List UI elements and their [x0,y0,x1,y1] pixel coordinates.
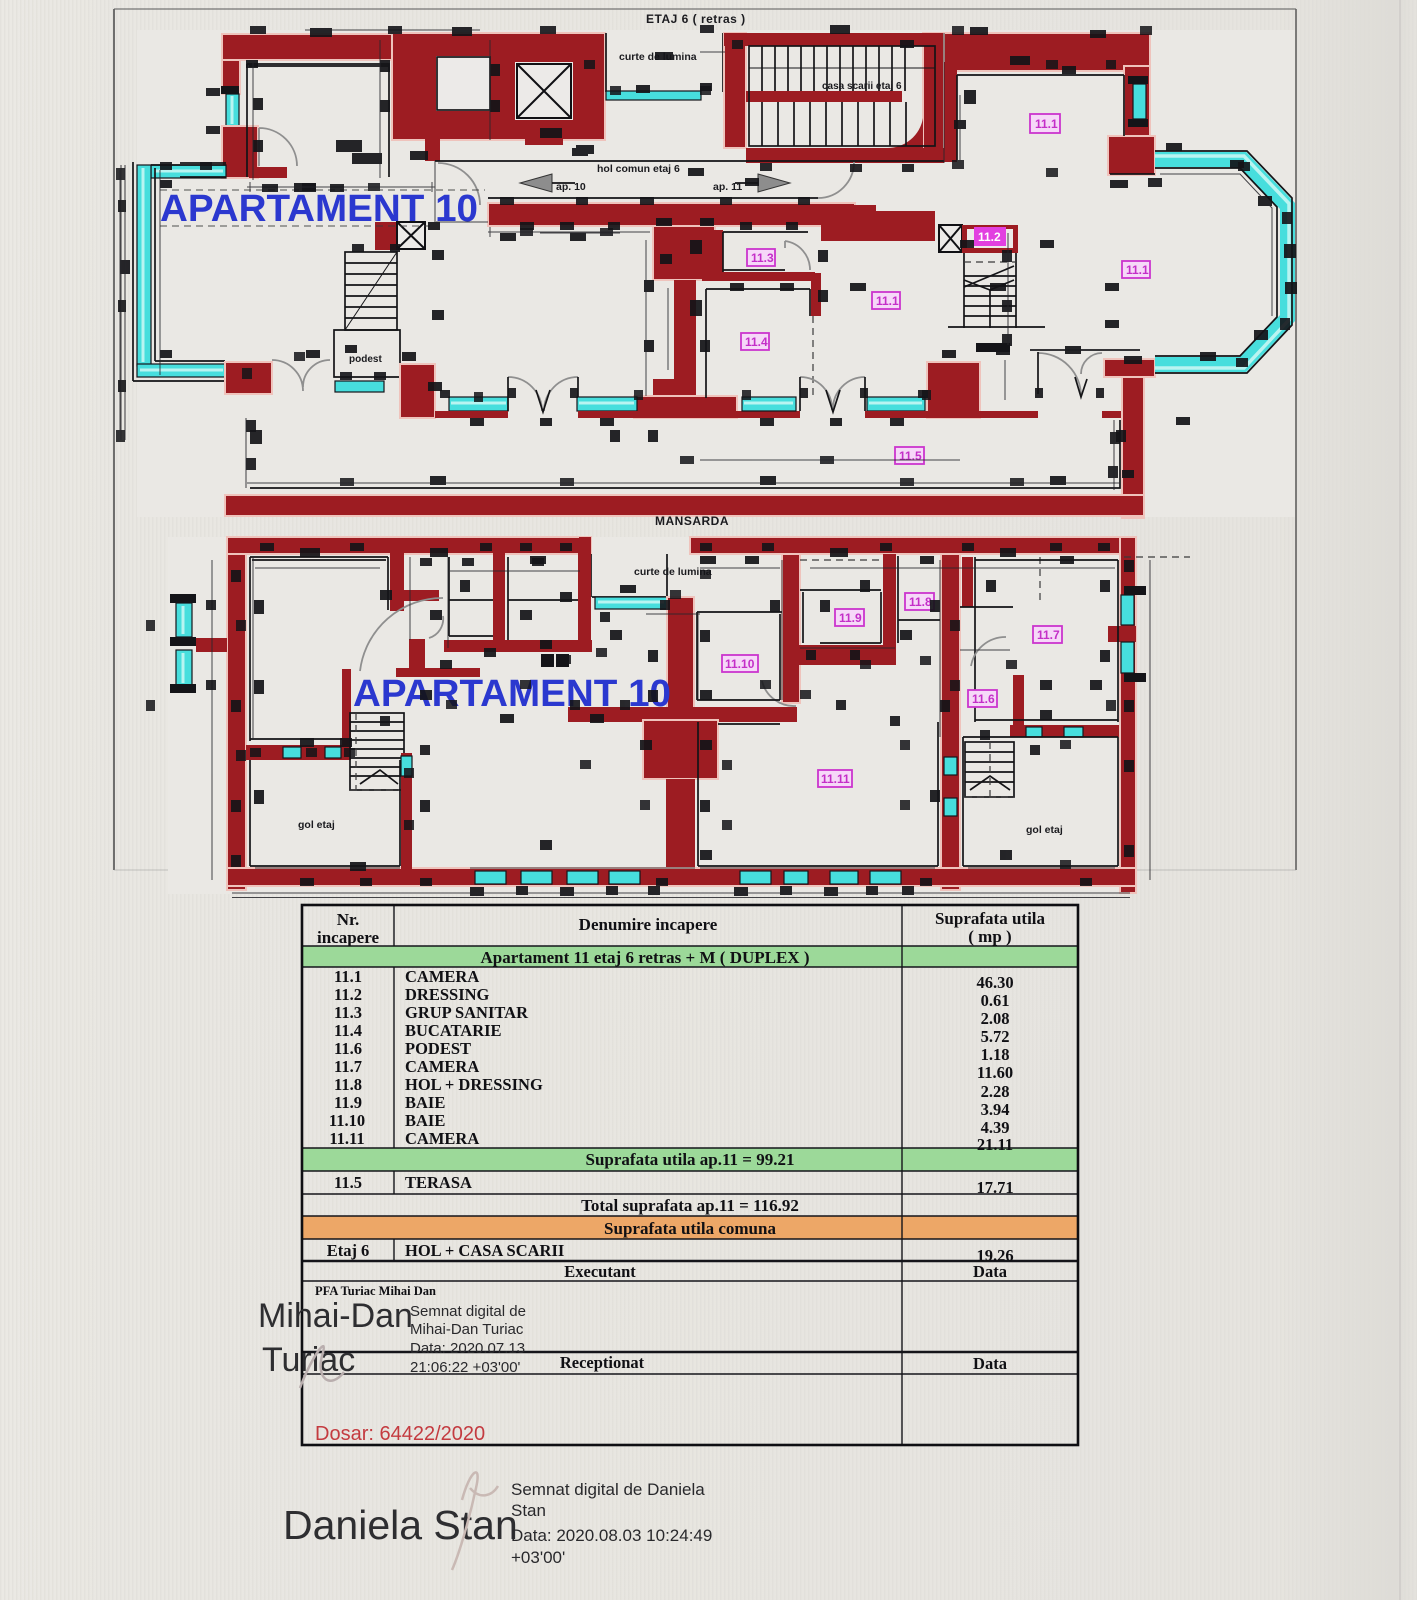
svg-text:Denumire incapere: Denumire incapere [579,915,718,934]
svg-text:11.1: 11.1 [876,294,899,308]
svg-text:3.94: 3.94 [981,1100,1010,1119]
svg-text:CAMERA: CAMERA [405,1129,479,1148]
svg-text:11.1: 11.1 [1035,117,1058,131]
svg-text:11.5: 11.5 [334,1173,362,1192]
svg-text:11.2: 11.2 [978,230,1001,244]
svg-text:BAIE: BAIE [405,1093,445,1112]
svg-text:Semnat digital de Daniela: Semnat digital de Daniela [511,1480,705,1499]
svg-text:( mp ): ( mp ) [968,927,1011,946]
svg-text:11.1: 11.1 [334,967,362,986]
svg-text:11.9: 11.9 [334,1093,362,1112]
svg-text:Data: 2020.08.03 10:24:49: Data: 2020.08.03 10:24:49 [511,1526,712,1545]
svg-text:Dosar: 64422/2020: Dosar: 64422/2020 [315,1423,485,1445]
svg-text:11.1: 11.1 [1126,263,1149,277]
svg-text:11.7: 11.7 [1037,628,1060,642]
svg-text:Data: Data [973,1262,1007,1281]
svg-text:ap. 11: ap. 11 [713,181,742,193]
svg-text:gol etaj: gol etaj [298,819,335,831]
svg-text:Suprafata utila: Suprafata utila [935,909,1046,928]
svg-text:46.30: 46.30 [976,973,1013,992]
svg-text:11.3: 11.3 [334,1003,362,1022]
svg-text:17.71: 17.71 [976,1178,1013,1197]
svg-text:2.28: 2.28 [981,1082,1010,1101]
svg-text:5.72: 5.72 [981,1027,1010,1046]
svg-text:Receptionat: Receptionat [560,1353,645,1372]
svg-text:11.4: 11.4 [745,335,768,349]
svg-text:11.11: 11.11 [329,1129,364,1148]
svg-text:ETAJ 6 ( retras ): ETAJ 6 ( retras ) [646,12,746,26]
svg-text:podest: podest [349,354,382,365]
svg-text:Suprafata utila comuna: Suprafata utila comuna [604,1219,776,1238]
svg-text:11.6: 11.6 [972,692,995,706]
svg-text:21:06:22 +03'00': 21:06:22 +03'00' [410,1359,521,1376]
svg-text:11.9: 11.9 [839,611,862,625]
svg-text:ap. 10: ap. 10 [556,181,586,193]
svg-text:Suprafata utila ap.11 = 99.21: Suprafata utila ap.11 = 99.21 [586,1150,795,1169]
svg-text:11.7: 11.7 [334,1057,362,1076]
svg-text:CAMERA: CAMERA [405,1057,479,1076]
svg-text:Data: Data [973,1354,1007,1373]
svg-text:21.11: 21.11 [977,1135,1013,1154]
svg-text:2.08: 2.08 [981,1009,1010,1028]
svg-text:11.3: 11.3 [751,251,774,265]
svg-text:Nr.: Nr. [337,910,360,929]
svg-text:Stan: Stan [511,1501,546,1520]
svg-text:11.10: 11.10 [329,1111,365,1130]
svg-text:CAMERA: CAMERA [405,967,479,986]
svg-text:BAIE: BAIE [405,1111,445,1130]
svg-text:Daniela Stan: Daniela Stan [283,1502,518,1548]
svg-text:Apartament 11 etaj 6 retras +: Apartament 11 etaj 6 retras + M ( DUPLEX… [481,948,810,967]
svg-text:Mihai-Dan Turiac: Mihai-Dan Turiac [410,1321,524,1338]
svg-text:casa scarii etaj 6: casa scarii etaj 6 [822,81,902,92]
svg-text:gol etaj: gol etaj [1026,824,1063,836]
svg-text:HOL + DRESSING: HOL + DRESSING [405,1075,543,1094]
svg-text:Semnat digital de: Semnat digital de [410,1303,526,1320]
svg-text:incapere: incapere [317,928,379,947]
svg-text:11.2: 11.2 [334,985,362,1004]
svg-text:11.11: 11.11 [821,772,850,786]
svg-text:hol comun etaj 6: hol comun etaj 6 [597,163,680,175]
svg-text:11.8: 11.8 [334,1075,362,1094]
svg-text:PFA Turiac Mihai Dan: PFA Turiac Mihai Dan [315,1284,436,1298]
svg-text:Turiac: Turiac [262,1341,355,1379]
svg-text:11.5: 11.5 [899,449,922,463]
svg-text:11.10: 11.10 [725,657,755,671]
svg-text:11.4: 11.4 [334,1021,362,1040]
svg-text:Etaj 6: Etaj 6 [327,1241,370,1260]
svg-text:0.61: 0.61 [981,991,1010,1010]
svg-text:11.8: 11.8 [909,595,932,609]
svg-text:MANSARDA: MANSARDA [655,514,729,528]
svg-text:Data: 2020.07.13: Data: 2020.07.13 [410,1340,525,1357]
svg-text:11.60: 11.60 [977,1063,1013,1082]
svg-text:PODEST: PODEST [405,1039,471,1058]
svg-text:+03'00': +03'00' [511,1548,565,1567]
svg-text:1.18: 1.18 [981,1045,1010,1064]
svg-text:HOL + CASA SCARII: HOL + CASA SCARII [405,1241,564,1260]
svg-text:Total suprafata ap.11 = 116.92: Total suprafata ap.11 = 116.92 [581,1196,799,1215]
svg-text:Executant: Executant [564,1262,636,1281]
svg-text:TERASA: TERASA [405,1173,472,1192]
svg-text:GRUP SANITAR: GRUP SANITAR [405,1003,529,1022]
svg-text:DRESSING: DRESSING [405,985,490,1004]
svg-text:BUCATARIE: BUCATARIE [405,1021,502,1040]
svg-text:Mihai-Dan: Mihai-Dan [258,1297,413,1335]
svg-text:11.6: 11.6 [334,1039,362,1058]
